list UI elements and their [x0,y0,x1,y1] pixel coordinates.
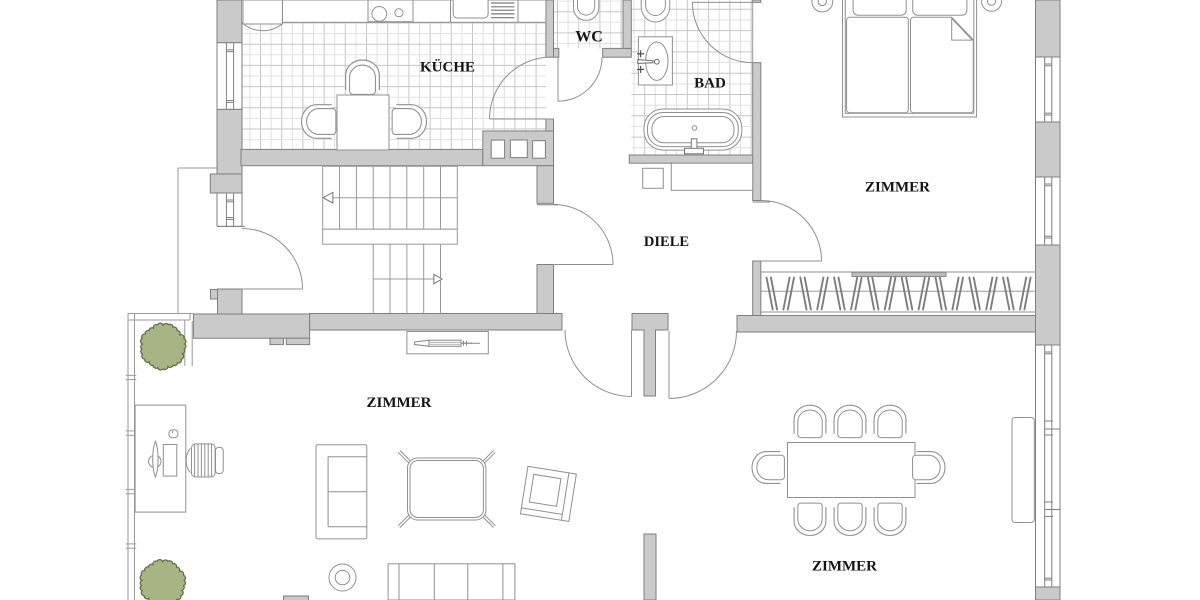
svg-text:ZIMMER: ZIMMER [865,180,930,196]
svg-text:DIELE: DIELE [644,234,689,250]
svg-text:ZIMMER: ZIMMER [812,559,877,575]
svg-text:KÜCHE: KÜCHE [420,59,475,76]
svg-text:WC: WC [575,29,603,46]
svg-text:BAD: BAD [694,76,726,92]
svg-text:ZIMMER: ZIMMER [367,395,432,411]
